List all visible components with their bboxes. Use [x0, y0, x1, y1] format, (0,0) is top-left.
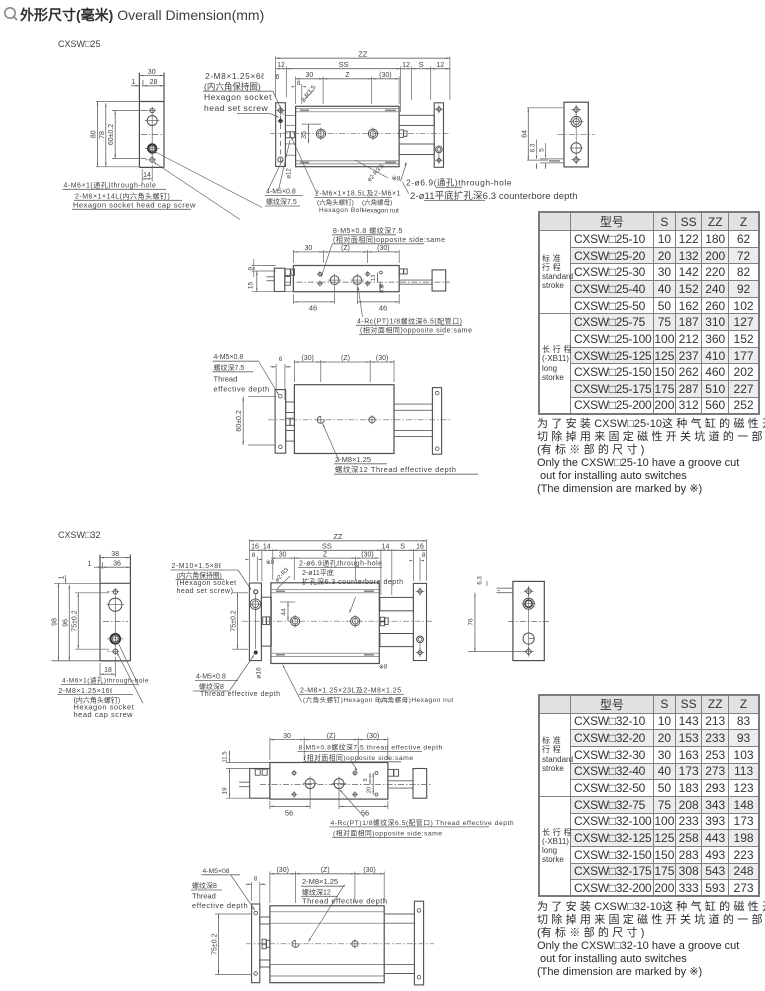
svg-text:14: 14 — [143, 172, 151, 179]
svg-text:6: 6 — [276, 74, 280, 81]
svg-text:75±0.2: 75±0.2 — [231, 610, 238, 631]
svg-text:※8: ※8 — [391, 176, 400, 183]
svg-text:38: 38 — [111, 551, 119, 558]
svg-text:2-M6×1×18.5L及2-M6×1: 2-M6×1×18.5L及2-M6×1 — [315, 190, 401, 198]
svg-text:SS: SS — [339, 60, 349, 69]
svg-text:2-ø11平底: 2-ø11平底 — [302, 568, 334, 577]
svg-text:14: 14 — [382, 544, 390, 551]
svg-text:4-M5×0.8: 4-M5×0.8 — [266, 189, 296, 196]
svg-text:螺纹深8: 螺纹深8 — [199, 682, 224, 691]
svg-text:Z: Z — [323, 551, 328, 558]
svg-text:(内六角保持圈): (内六角保持圈) — [204, 81, 261, 91]
svg-text:46: 46 — [379, 304, 387, 313]
svg-text:(相对面相同)opposite side:same: (相对面相同)opposite side:same — [304, 753, 414, 762]
svg-text:76: 76 — [468, 618, 475, 626]
svg-text:12: 12 — [436, 62, 444, 69]
svg-text:2-ø6.9(通孔)through-hole: 2-ø6.9(通孔)through-hole — [406, 178, 512, 188]
svg-text:(相对面相同)opposite side:same: (相对面相同)opposite side:same — [333, 235, 445, 244]
svg-text:30: 30 — [283, 733, 291, 740]
svg-text:15: 15 — [248, 282, 255, 290]
svg-text:20: 20 — [367, 787, 373, 793]
svg-text:CXSW□32: CXSW□32 — [58, 530, 100, 540]
svg-text:8: 8 — [297, 80, 301, 87]
svg-text:(30): (30) — [363, 867, 375, 874]
svg-text:(Hexagon socket: (Hexagon socket — [177, 580, 237, 587]
svg-text:98: 98 — [51, 618, 58, 626]
svg-text:ø2-R3: ø2-R3 — [274, 567, 290, 584]
svg-text:SS: SS — [322, 542, 332, 551]
svg-text:Hexagon socket: Hexagon socket — [204, 92, 272, 102]
svg-text:1: 1 — [132, 79, 136, 86]
svg-text:(相对面相同)opposite side:same: (相对面相同)opposite side:same — [360, 326, 472, 335]
svg-text:16: 16 — [251, 544, 259, 551]
svg-text:30: 30 — [306, 72, 314, 79]
svg-text:11.5: 11.5 — [223, 751, 229, 763]
svg-text:2-M8×1.25×16ℓ: 2-M8×1.25×16ℓ — [59, 688, 114, 695]
svg-text:※8: ※8 — [379, 664, 388, 671]
svg-text:2-M6×1×14L(内六角头螺钉): 2-M6×1×14L(内六角头螺钉) — [75, 191, 170, 200]
svg-text:S: S — [419, 60, 424, 69]
svg-text:CXSW□25: CXSW□25 — [58, 39, 100, 49]
svg-text:head set screw: head set screw — [204, 103, 269, 113]
svg-text:75±0.2: 75±0.2 — [71, 610, 78, 631]
svg-text:6.3: 6.3 — [529, 143, 536, 152]
svg-text:2-M8×1.25×6ℓ: 2-M8×1.25×6ℓ — [205, 71, 264, 81]
svg-text:(Z): (Z) — [327, 733, 336, 740]
svg-text:8.5: 8.5 — [380, 285, 386, 293]
svg-text:2-M10×1.5×8ℓ: 2-M10×1.5×8ℓ — [172, 563, 222, 570]
svg-text:2-ø6.9通孔through-hole: 2-ø6.9通孔through-hole — [299, 559, 383, 568]
svg-text:(30): (30) — [377, 245, 389, 252]
svg-text:(六角头螺钉)Hexagon Bolt: (六角头螺钉)Hexagon Bolt — [303, 695, 388, 704]
svg-text:80: 80 — [91, 130, 98, 138]
svg-text:head cap screw: head cap screw — [74, 710, 134, 719]
svg-text:(30): (30) — [276, 867, 288, 874]
svg-text:4-Rc(PT)1/8螺纹深6.5(配管口): 4-Rc(PT)1/8螺纹深6.5(配管口) — [357, 316, 463, 325]
svg-text:5: 5 — [539, 148, 546, 152]
svg-text:(30): (30) — [301, 355, 313, 362]
svg-text:46: 46 — [309, 304, 317, 313]
svg-text:螺纹深8: 螺纹深8 — [192, 881, 217, 890]
svg-text:18: 18 — [104, 667, 112, 674]
svg-text:Z: Z — [345, 72, 350, 79]
svg-text:2-ø11平底扩孔深6.3 counterbore dept: 2-ø11平底扩孔深6.3 counterbore depth — [410, 190, 578, 202]
svg-text:(30): (30) — [361, 551, 373, 558]
svg-text:4-M5×08: 4-M5×08 — [203, 868, 230, 875]
svg-text:4-M5×0.8: 4-M5×0.8 — [214, 354, 244, 361]
svg-text:12: 12 — [402, 62, 410, 69]
svg-text:ZZ: ZZ — [333, 532, 343, 541]
svg-text:8-M5×0.8 螺纹深7.5: 8-M5×0.8 螺纹深7.5 — [333, 226, 403, 235]
svg-text:78: 78 — [99, 131, 106, 139]
svg-text:effective depth: effective depth — [192, 901, 248, 910]
svg-text:(六角头螺钉): (六角头螺钉) — [317, 197, 354, 206]
svg-text:14: 14 — [263, 544, 271, 551]
svg-text:4-M6×1(通孔)through-hole: 4-M6×1(通孔)through-hole — [64, 181, 157, 190]
svg-text:60±0.2: 60±0.2 — [236, 410, 243, 431]
svg-text:※8: ※8 — [266, 559, 275, 566]
svg-text:effective depth: effective depth — [214, 385, 270, 394]
svg-text:12: 12 — [277, 62, 285, 69]
svg-text:Hexagon Bolt: Hexagon Bolt — [319, 207, 364, 214]
svg-text:(六角螺母): (六角螺母) — [362, 197, 392, 206]
svg-text:8: 8 — [252, 552, 256, 559]
svg-text:螺纹深12: 螺纹深12 — [302, 887, 331, 896]
svg-text:13: 13 — [371, 275, 377, 281]
svg-text:(30): (30) — [379, 72, 391, 79]
svg-text:ø2-R3.5: ø2-R3.5 — [367, 163, 386, 184]
svg-text:2-M8×1.25: 2-M8×1.25 — [335, 455, 371, 464]
svg-text:(30): (30) — [367, 733, 379, 740]
svg-text:Thread: Thread — [192, 891, 216, 900]
svg-text:35: 35 — [301, 131, 308, 139]
svg-text:28: 28 — [150, 79, 158, 86]
svg-text:(Z): (Z) — [321, 867, 330, 874]
svg-text:(内六角保持圈): (内六角保持圈) — [177, 570, 222, 579]
svg-text:36: 36 — [113, 560, 121, 567]
svg-text:1: 1 — [88, 561, 92, 568]
svg-text:(六角螺母)Hexagon nut: (六角螺母)Hexagon nut — [378, 695, 454, 704]
svg-text:60±0.2: 60±0.2 — [108, 124, 115, 145]
svg-text:Thread effective depth: Thread effective depth — [302, 897, 388, 906]
svg-text:44: 44 — [281, 608, 288, 616]
svg-text:Thread effective depth: Thread effective depth — [200, 691, 281, 698]
svg-text:4-Rc(PT)1/8螺纹深6.5(配管口) Thread: 4-Rc(PT)1/8螺纹深6.5(配管口) Thread effective … — [331, 818, 515, 827]
svg-text:56: 56 — [285, 809, 293, 818]
svg-text:8: 8 — [254, 877, 258, 883]
svg-text:30: 30 — [279, 551, 287, 558]
svg-text:Hexagon nut: Hexagon nut — [362, 208, 399, 215]
svg-text:(Z): (Z) — [341, 245, 350, 252]
svg-text:(30): (30) — [376, 355, 388, 362]
svg-text:Thread: Thread — [214, 374, 238, 383]
svg-text:Hexagon socket head cap screw: Hexagon socket head cap screw — [73, 201, 196, 210]
svg-text:56: 56 — [361, 809, 369, 818]
svg-text:ZZ: ZZ — [358, 49, 368, 58]
svg-text:1: 1 — [59, 575, 66, 579]
svg-text:扩孔深6.3 counterbore depth: 扩孔深6.3 counterbore depth — [302, 577, 404, 586]
svg-text:(Z): (Z) — [341, 355, 350, 362]
svg-text:螺纹深7.5: 螺纹深7.5 — [214, 363, 245, 372]
svg-text:ø12: ø12 — [287, 168, 293, 179]
svg-text:6: 6 — [279, 357, 283, 363]
svg-text:19: 19 — [222, 787, 229, 795]
svg-text:螺纹深12 Thread effective depth: 螺纹深12 Thread effective depth — [335, 464, 456, 474]
svg-text:8: 8 — [422, 552, 426, 559]
svg-text:75±0.2: 75±0.2 — [212, 933, 219, 954]
svg-text:(相对面相同)opposite side:same: (相对面相同)opposite side:same — [333, 828, 443, 837]
svg-text:head set screw): head set screw) — [177, 588, 234, 595]
svg-text:9: 9 — [363, 778, 369, 781]
svg-text:螺纹深7.5: 螺纹深7.5 — [266, 197, 297, 206]
svg-text:30: 30 — [148, 69, 156, 76]
svg-text:2-M8×1.25: 2-M8×1.25 — [302, 877, 338, 886]
svg-text:S: S — [400, 542, 405, 551]
svg-text:64: 64 — [521, 130, 528, 138]
svg-text:16: 16 — [416, 544, 424, 551]
svg-text:30: 30 — [305, 245, 313, 252]
svg-text:6.3: 6.3 — [478, 576, 484, 585]
svg-text:4-M5×0.8: 4-M5×0.8 — [196, 674, 226, 681]
svg-text:2-M8×1.25×23L及2-M8×1.25: 2-M8×1.25×23L及2-M8×1.25 — [300, 687, 402, 695]
svg-text:ø16: ø16 — [256, 667, 263, 679]
svg-text:8-M5×0.8螺纹深7.5 thread effectiv: 8-M5×0.8螺纹深7.5 thread effective depth — [299, 743, 443, 752]
svg-text:96: 96 — [62, 619, 69, 627]
svg-text:4-M6×1(通孔)through-hole: 4-M6×1(通孔)through-hole — [62, 676, 149, 685]
